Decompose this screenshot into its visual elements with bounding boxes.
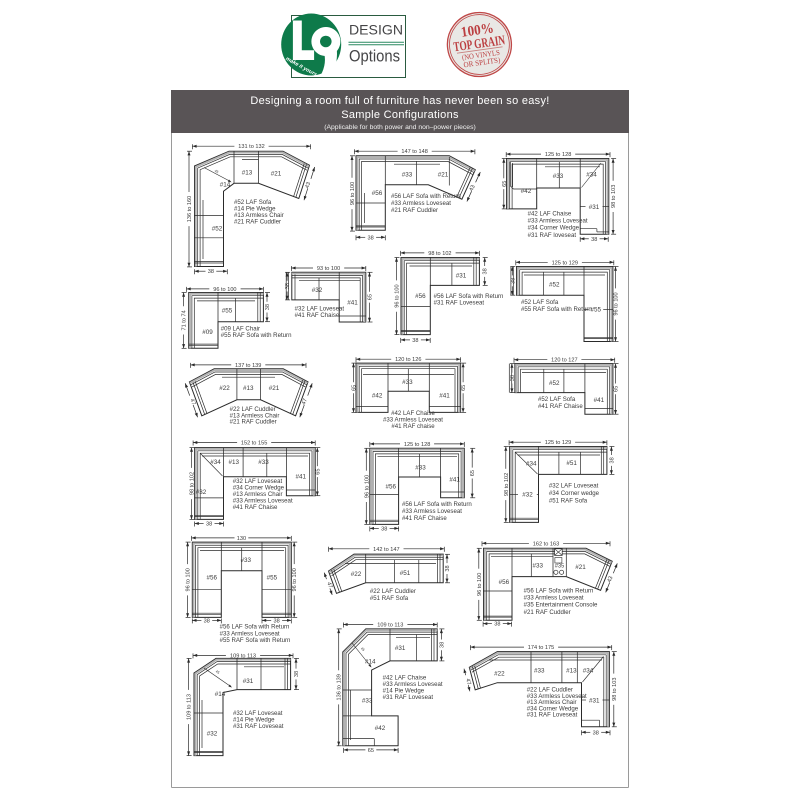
svg-text:#52: #52	[549, 380, 560, 387]
svg-text:#34: #34	[210, 459, 221, 466]
svg-text:#34: #34	[526, 461, 537, 468]
svg-text:131 to 132: 131 to 132	[238, 144, 264, 150]
svg-text:#56: #56	[499, 579, 510, 586]
svg-text:#51: #51	[400, 570, 411, 577]
svg-text:#31: #31	[589, 697, 600, 704]
svg-text:#33 Armless Loveseat: #33 Armless Loveseat	[524, 595, 584, 602]
svg-text:120 to 127: 120 to 127	[551, 358, 577, 364]
svg-text:38: 38	[510, 375, 516, 381]
svg-text:38: 38	[285, 283, 291, 289]
svg-text:#33: #33	[553, 173, 564, 180]
svg-text:#33: #33	[240, 557, 251, 564]
svg-text:43: 43	[305, 181, 313, 189]
svg-text:#31 RAF loveseat: #31 RAF loveseat	[528, 232, 577, 239]
svg-text:#41 RAF Chaise: #41 RAF Chaise	[538, 403, 583, 410]
svg-text:#33: #33	[362, 697, 373, 704]
svg-text:47: 47	[464, 678, 471, 686]
svg-text:96 to 100: 96 to 100	[614, 292, 620, 315]
svg-text:#33 Armless Loveseat: #33 Armless Loveseat	[391, 200, 451, 207]
svg-text:#13: #13	[566, 667, 577, 674]
svg-text:38: 38	[439, 642, 445, 648]
svg-text:#14: #14	[365, 658, 376, 665]
svg-text:#33: #33	[533, 563, 544, 570]
svg-text:162 to 163: 162 to 163	[533, 541, 559, 547]
svg-text:#33 Armless Loveseat: #33 Armless Loveseat	[402, 508, 462, 515]
svg-text:65: 65	[461, 385, 467, 391]
svg-text:47: 47	[301, 398, 309, 406]
svg-text:#51 RAF Sofa: #51 RAF Sofa	[370, 595, 409, 602]
svg-text:#55 RAF Sofa with Return: #55 RAF Sofa with Return	[521, 306, 592, 313]
svg-text:65: 65	[502, 181, 508, 187]
svg-text:#21: #21	[575, 564, 586, 571]
svg-text:38: 38	[381, 526, 387, 532]
svg-text:#56: #56	[386, 484, 397, 491]
svg-text:#31: #31	[456, 273, 467, 280]
svg-text:#21: #21	[271, 171, 282, 178]
svg-text:136 to 139: 136 to 139	[337, 674, 343, 700]
svg-text:#34 Corner wedge: #34 Corner wedge	[549, 490, 600, 497]
svg-text:#52: #52	[212, 226, 223, 233]
svg-text:#31 RAF Loveseat: #31 RAF Loveseat	[434, 299, 485, 306]
svg-text:#33 Armless Loveseat: #33 Armless Loveseat	[528, 218, 588, 225]
svg-text:#42 LAF Chaise: #42 LAF Chaise	[528, 210, 572, 217]
svg-text:96 to 100: 96 to 100	[477, 573, 483, 596]
svg-text:#41: #41	[347, 300, 358, 307]
svg-text:#31 RAF Loveseat: #31 RAF Loveseat	[383, 694, 434, 701]
svg-text:96 to 100: 96 to 100	[350, 182, 356, 205]
svg-text:98 to 103: 98 to 103	[612, 678, 618, 701]
svg-text:#22 LAF Cuddler: #22 LAF Cuddler	[370, 588, 416, 595]
svg-text:109 to 113: 109 to 113	[187, 694, 193, 720]
svg-text:47: 47	[188, 398, 196, 406]
svg-text:38: 38	[294, 671, 300, 677]
svg-text:125 to 129: 125 to 129	[545, 440, 571, 446]
svg-text:98 to 103: 98 to 103	[611, 185, 617, 208]
svg-text:#21: #21	[269, 385, 280, 392]
svg-text:125 to 129: 125 to 129	[552, 260, 578, 266]
svg-text:#55: #55	[267, 575, 278, 582]
svg-text:#13: #13	[228, 459, 239, 466]
svg-text:#35: #35	[555, 564, 564, 570]
svg-text:38: 38	[204, 618, 210, 624]
svg-text:38: 38	[208, 269, 214, 275]
svg-text:#56 LAF Sofa with Return: #56 LAF Sofa with Return	[391, 193, 461, 200]
svg-text:38: 38	[206, 522, 212, 528]
svg-text:38: 38	[591, 237, 597, 243]
svg-text:#31: #31	[395, 645, 406, 652]
svg-text:#51 RAF Sofa: #51 RAF Sofa	[549, 498, 588, 505]
svg-text:98 to 102: 98 to 102	[504, 473, 510, 496]
svg-text:#56: #56	[415, 293, 426, 300]
svg-text:38: 38	[483, 268, 489, 274]
svg-text:#56: #56	[372, 190, 383, 197]
svg-text:#35 Entertainment Console: #35 Entertainment Console	[524, 602, 598, 609]
svg-text:65: 65	[614, 386, 620, 392]
svg-text:152 to 155: 152 to 155	[241, 441, 267, 447]
svg-text:142 to 147: 142 to 147	[373, 547, 399, 553]
svg-text:#41 RAF chaise: #41 RAF chaise	[391, 423, 435, 430]
svg-text:137 to 139: 137 to 139	[235, 363, 261, 369]
svg-text:#31 RAF Loveseat: #31 RAF Loveseat	[527, 712, 578, 719]
svg-text:#31 RAF Loveseat: #31 RAF Loveseat	[233, 723, 284, 730]
svg-text:96 to 100: 96 to 100	[395, 284, 401, 307]
svg-text:#13: #13	[243, 385, 254, 392]
svg-text:#33: #33	[258, 459, 269, 466]
svg-text:174 to 175: 174 to 175	[528, 645, 554, 651]
svg-text:147 to 148: 147 to 148	[401, 149, 427, 155]
svg-text:38: 38	[445, 565, 451, 571]
svg-text:96 to 100: 96 to 100	[364, 475, 370, 498]
svg-text:#22: #22	[351, 571, 362, 578]
svg-text:#21 RAF Cuddler: #21 RAF Cuddler	[391, 207, 438, 214]
svg-text:#42: #42	[372, 393, 383, 400]
svg-text:109 to 113: 109 to 113	[377, 623, 403, 629]
svg-text:96 to 100: 96 to 100	[186, 568, 192, 591]
svg-text:#41 RAF Chaise: #41 RAF Chaise	[402, 515, 447, 522]
svg-text:#41: #41	[594, 397, 605, 404]
svg-text:130: 130	[237, 536, 246, 542]
svg-text:98 to 102: 98 to 102	[428, 251, 451, 257]
svg-text:71 to 74: 71 to 74	[182, 310, 188, 330]
svg-text:43: 43	[607, 576, 615, 584]
svg-text:Options: Options	[349, 48, 400, 66]
svg-text:120 to 126: 120 to 126	[395, 357, 421, 363]
svg-text:#52 LAF Sofa: #52 LAF Sofa	[521, 299, 559, 306]
svg-text:65: 65	[368, 294, 374, 300]
svg-text:136 to 160: 136 to 160	[187, 196, 193, 222]
svg-text:#22: #22	[494, 671, 505, 678]
svg-text:96 to 100: 96 to 100	[292, 568, 298, 591]
svg-text:38: 38	[494, 622, 500, 628]
svg-text:98 to 102: 98 to 102	[190, 472, 196, 495]
svg-text:65: 65	[470, 470, 476, 476]
svg-text:#22: #22	[219, 385, 230, 392]
svg-text:#21 RAF Cuddler: #21 RAF Cuddler	[524, 609, 571, 616]
svg-text:#41 RAF Chaise: #41 RAF Chaise	[233, 504, 278, 511]
svg-text:#33: #33	[534, 667, 545, 674]
svg-text:#34: #34	[586, 172, 597, 179]
svg-text:#41: #41	[439, 393, 450, 400]
svg-text:#41: #41	[296, 473, 307, 480]
svg-text:#31: #31	[589, 204, 600, 211]
svg-text:#55 RAF Sofa with Return: #55 RAF Sofa with Return	[220, 637, 291, 644]
svg-text:47: 47	[325, 581, 333, 589]
svg-text:#56 LAF Sofa with Return: #56 LAF Sofa with Return	[402, 501, 472, 508]
svg-text:#33: #33	[402, 171, 413, 178]
svg-text:#34 Corner Wedge: #34 Corner Wedge	[528, 225, 580, 232]
svg-text:#41 RAF Chaise: #41 RAF Chaise	[295, 312, 340, 319]
svg-text:65: 65	[315, 468, 321, 474]
svg-text:93 to 100: 93 to 100	[317, 266, 340, 272]
svg-text:96 to 100: 96 to 100	[213, 287, 236, 293]
svg-text:38: 38	[367, 235, 373, 241]
svg-text:#32 LAF Loveseat: #32 LAF Loveseat	[549, 482, 599, 489]
svg-text:#34: #34	[583, 667, 594, 674]
svg-text:#55 RAF Sofa with Return: #55 RAF Sofa with Return	[221, 332, 292, 339]
svg-text:#32: #32	[207, 731, 218, 738]
svg-text:#14: #14	[215, 691, 226, 698]
svg-text:#09: #09	[202, 329, 213, 336]
svg-text:#21: #21	[438, 171, 449, 178]
svg-text:#56 LAF Sofa with Return: #56 LAF Sofa with Return	[524, 587, 594, 594]
svg-text:#33: #33	[415, 464, 426, 471]
svg-text:DESIGN: DESIGN	[349, 22, 403, 38]
svg-text:43: 43	[469, 184, 477, 192]
svg-text:#21 RAF Cuddler: #21 RAF Cuddler	[230, 419, 277, 426]
svg-text:#14: #14	[220, 182, 231, 189]
svg-text:125 to 128: 125 to 128	[545, 152, 571, 158]
svg-text:#32: #32	[196, 489, 207, 496]
svg-text:38: 38	[412, 338, 418, 344]
svg-text:#33: #33	[402, 379, 413, 386]
svg-text:#51: #51	[566, 460, 577, 467]
svg-text:38: 38	[609, 457, 615, 463]
svg-text:#31: #31	[243, 678, 254, 685]
svg-text:38: 38	[510, 278, 516, 284]
svg-text:#32: #32	[522, 491, 533, 498]
svg-text:#41: #41	[449, 477, 460, 484]
svg-text:#13: #13	[242, 170, 253, 177]
svg-text:#55: #55	[591, 307, 602, 314]
svg-text:#52 LAF Sofa: #52 LAF Sofa	[538, 396, 576, 403]
svg-text:#42: #42	[521, 188, 532, 195]
svg-text:65: 65	[368, 748, 374, 754]
svg-text:#52: #52	[549, 282, 560, 289]
svg-text:38: 38	[265, 304, 271, 310]
svg-text:#21 RAF Cuddler: #21 RAF Cuddler	[234, 218, 281, 225]
svg-text:#56: #56	[207, 575, 218, 582]
svg-text:38: 38	[593, 730, 599, 736]
svg-text:125 to 128: 125 to 128	[404, 442, 430, 448]
svg-text:#42: #42	[375, 725, 386, 732]
svg-text:#55: #55	[222, 307, 233, 314]
svg-text:109 to 113: 109 to 113	[230, 653, 256, 659]
svg-text:#32: #32	[312, 287, 323, 294]
svg-text:65: 65	[352, 385, 358, 391]
